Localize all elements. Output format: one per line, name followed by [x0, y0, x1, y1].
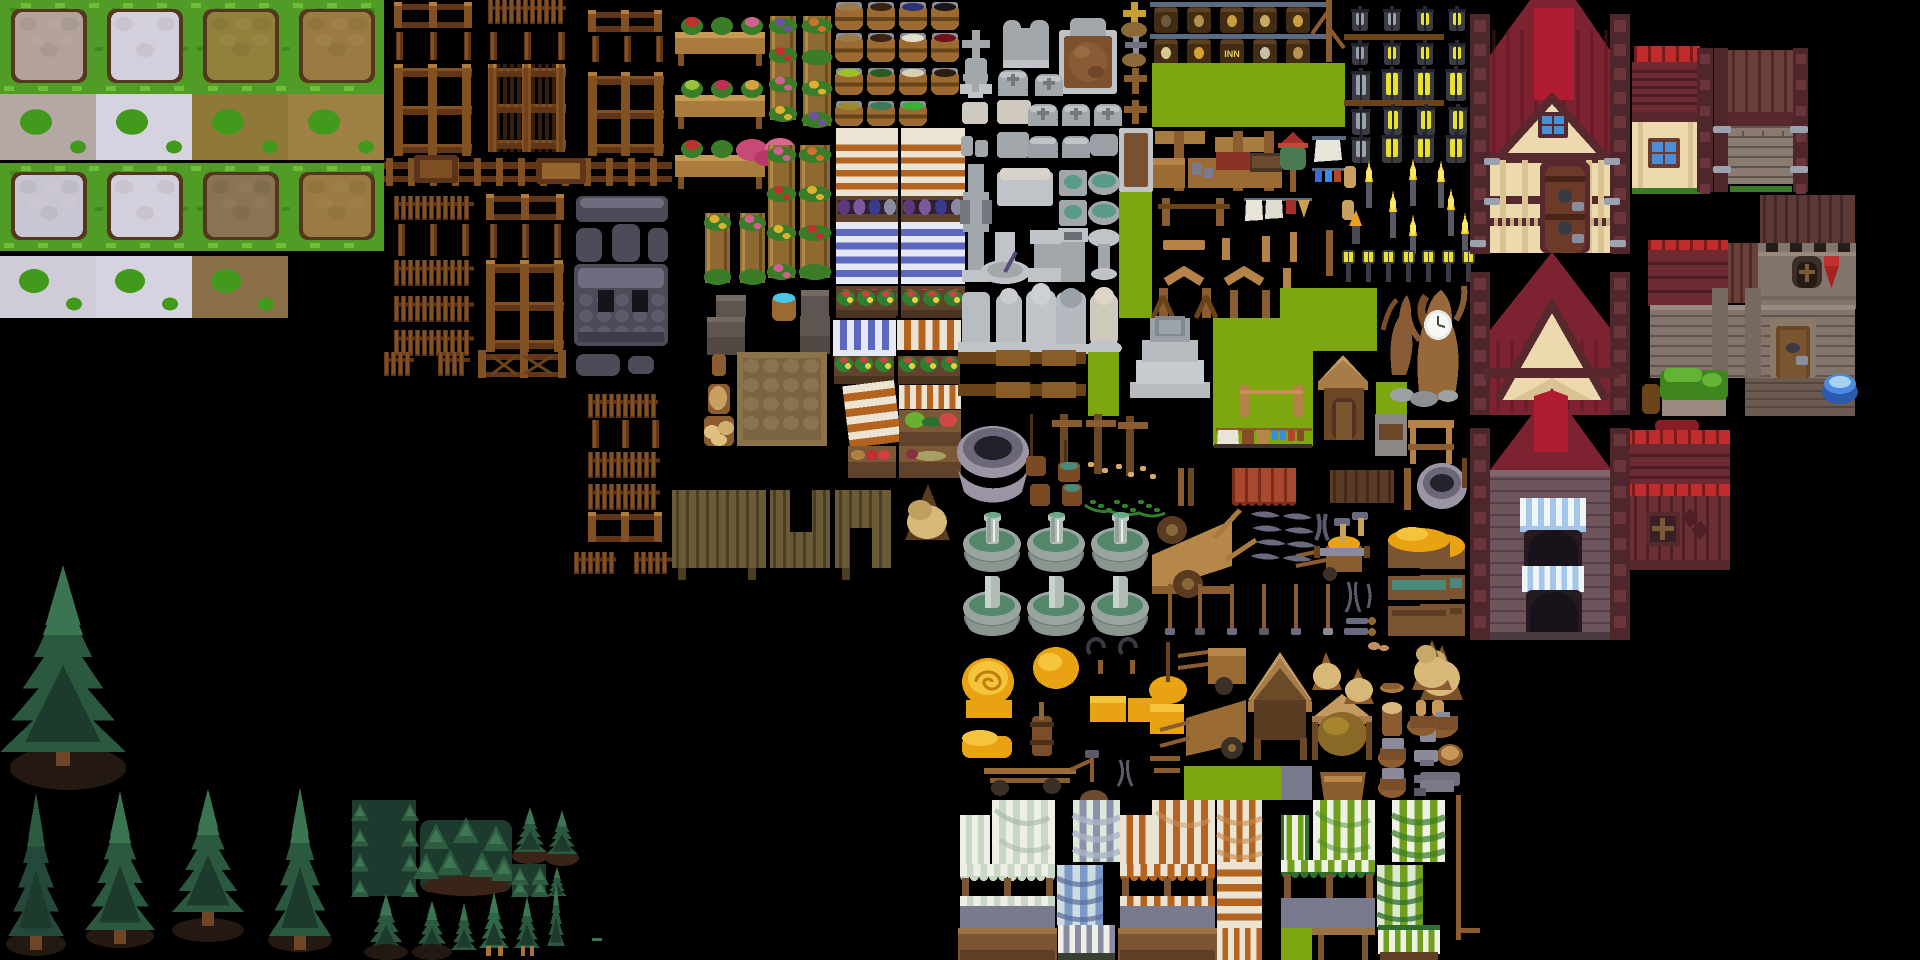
svg-text:INN: INN: [1224, 49, 1240, 59]
